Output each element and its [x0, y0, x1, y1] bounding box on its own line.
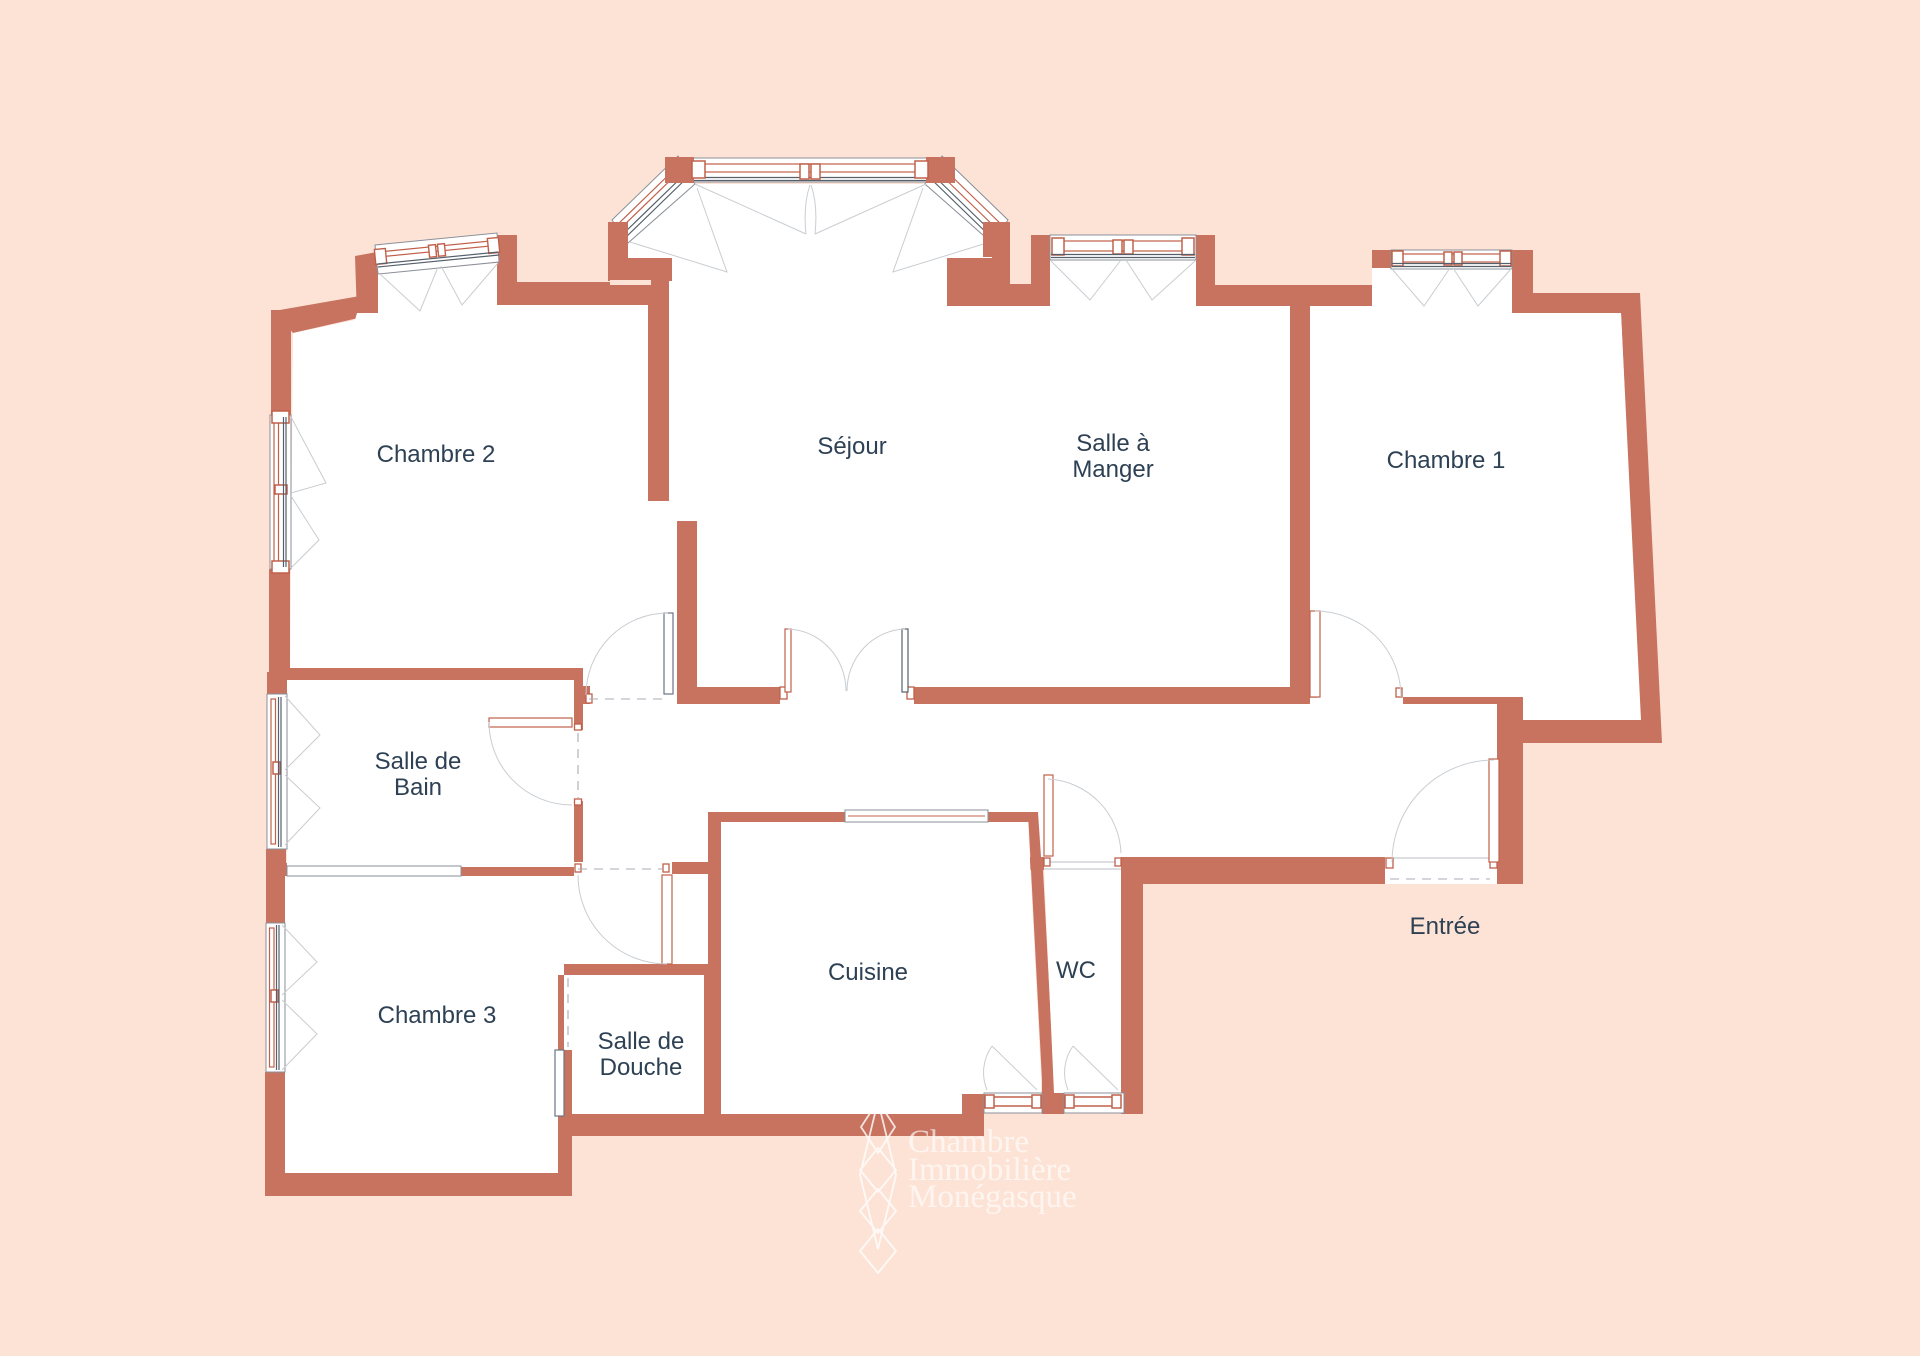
svg-text:Chambre 3: Chambre 3 — [378, 1002, 497, 1029]
svg-text:Salle à: Salle à — [1076, 430, 1150, 457]
svg-text:Monégasque: Monégasque — [908, 1179, 1077, 1215]
svg-text:Chambre 2: Chambre 2 — [377, 441, 496, 468]
svg-text:WC: WC — [1056, 957, 1096, 984]
svg-text:Entrée: Entrée — [1410, 913, 1481, 940]
svg-text:Salle de: Salle de — [375, 748, 462, 775]
svg-text:Cuisine: Cuisine — [828, 959, 908, 986]
svg-text:Bain: Bain — [394, 774, 442, 801]
svg-text:Douche: Douche — [600, 1054, 683, 1081]
svg-text:Manger: Manger — [1072, 456, 1153, 483]
svg-text:Séjour: Séjour — [817, 433, 886, 460]
svg-text:Salle de: Salle de — [598, 1028, 685, 1055]
svg-text:Chambre 1: Chambre 1 — [1387, 447, 1506, 474]
